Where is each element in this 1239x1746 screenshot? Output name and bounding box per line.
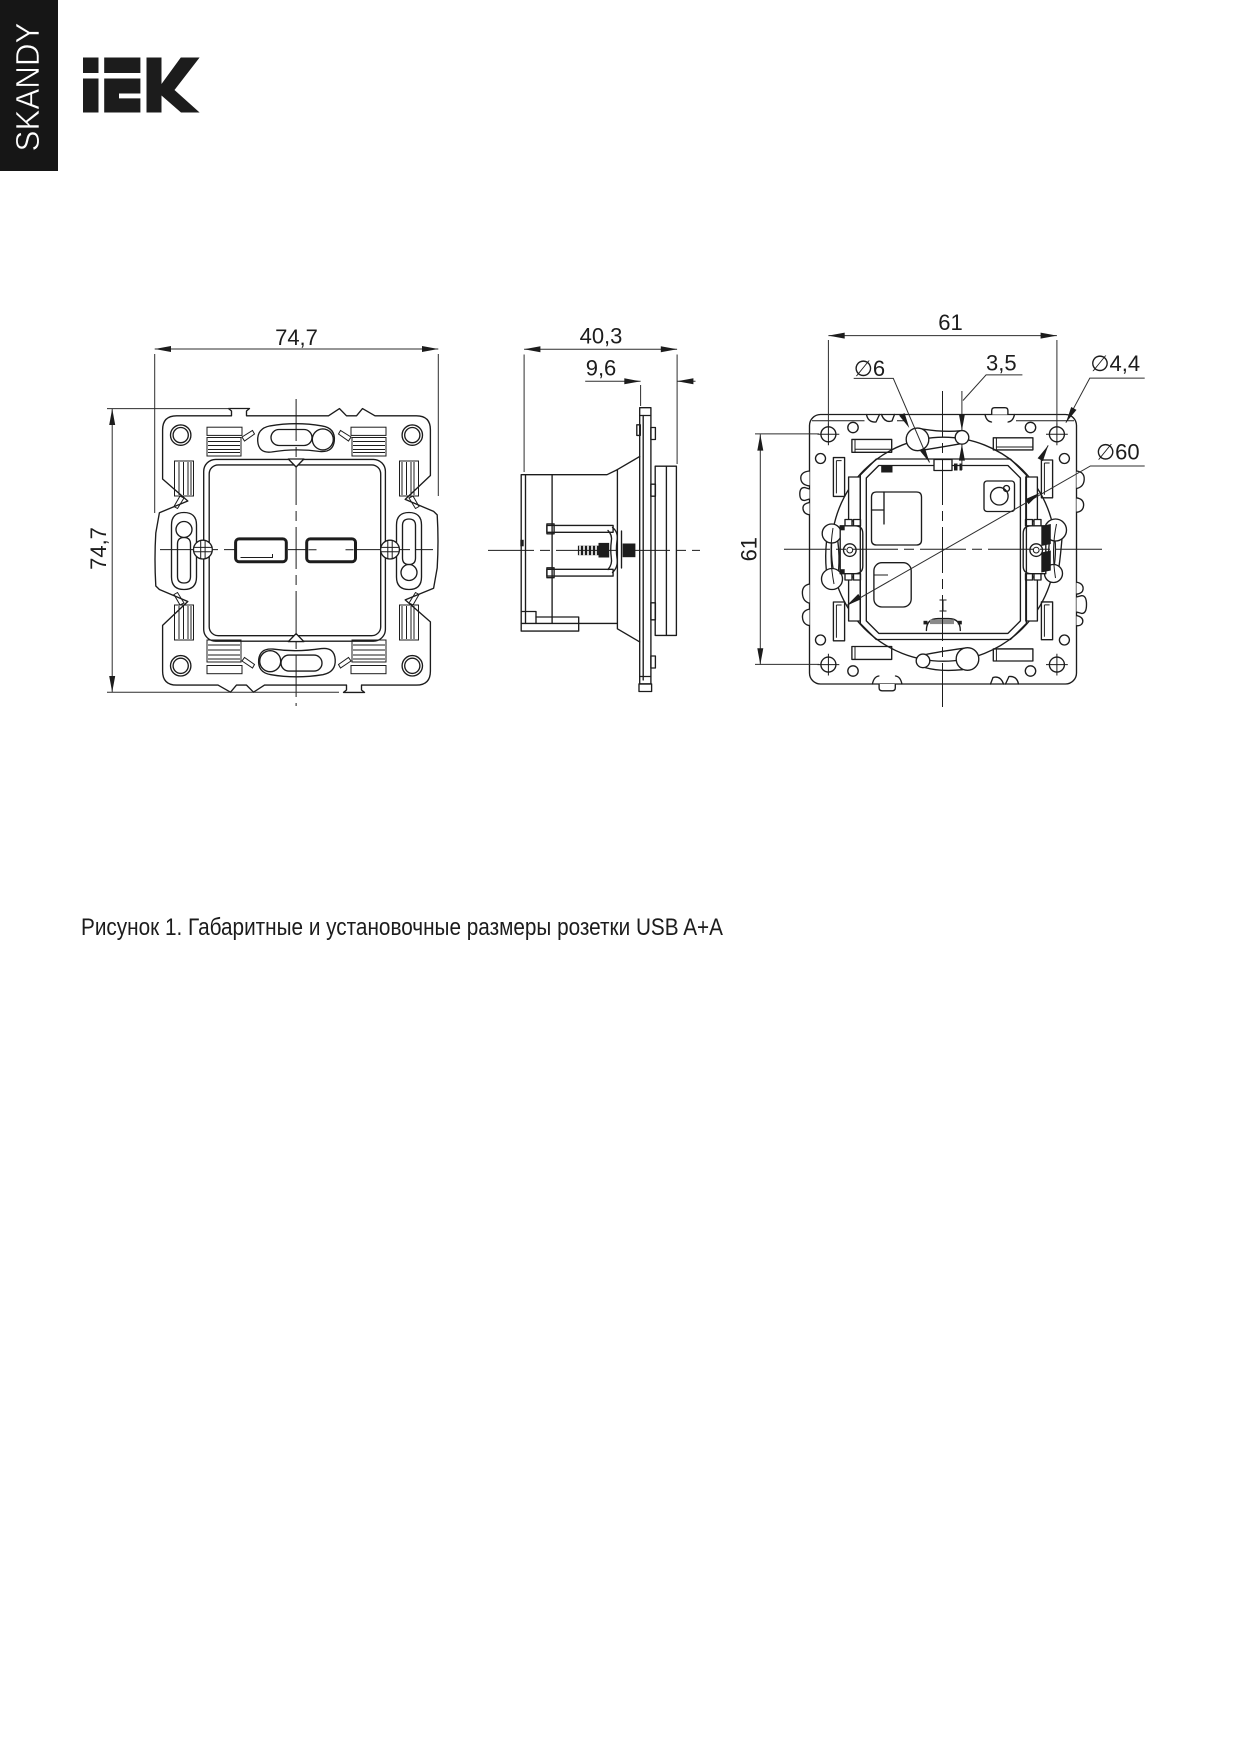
svg-text:∅60: ∅60 xyxy=(1096,440,1140,465)
svg-text:3,5: 3,5 xyxy=(986,351,1017,376)
svg-text:61: 61 xyxy=(737,537,762,561)
svg-text:74,7: 74,7 xyxy=(86,527,111,570)
svg-text:74,7: 74,7 xyxy=(275,325,318,350)
svg-text:9,6: 9,6 xyxy=(586,356,617,381)
svg-text:61: 61 xyxy=(938,310,962,335)
svg-text:∅6: ∅6 xyxy=(854,356,885,381)
svg-text:40,3: 40,3 xyxy=(580,324,623,349)
svg-text:∅4,4: ∅4,4 xyxy=(1090,351,1140,376)
